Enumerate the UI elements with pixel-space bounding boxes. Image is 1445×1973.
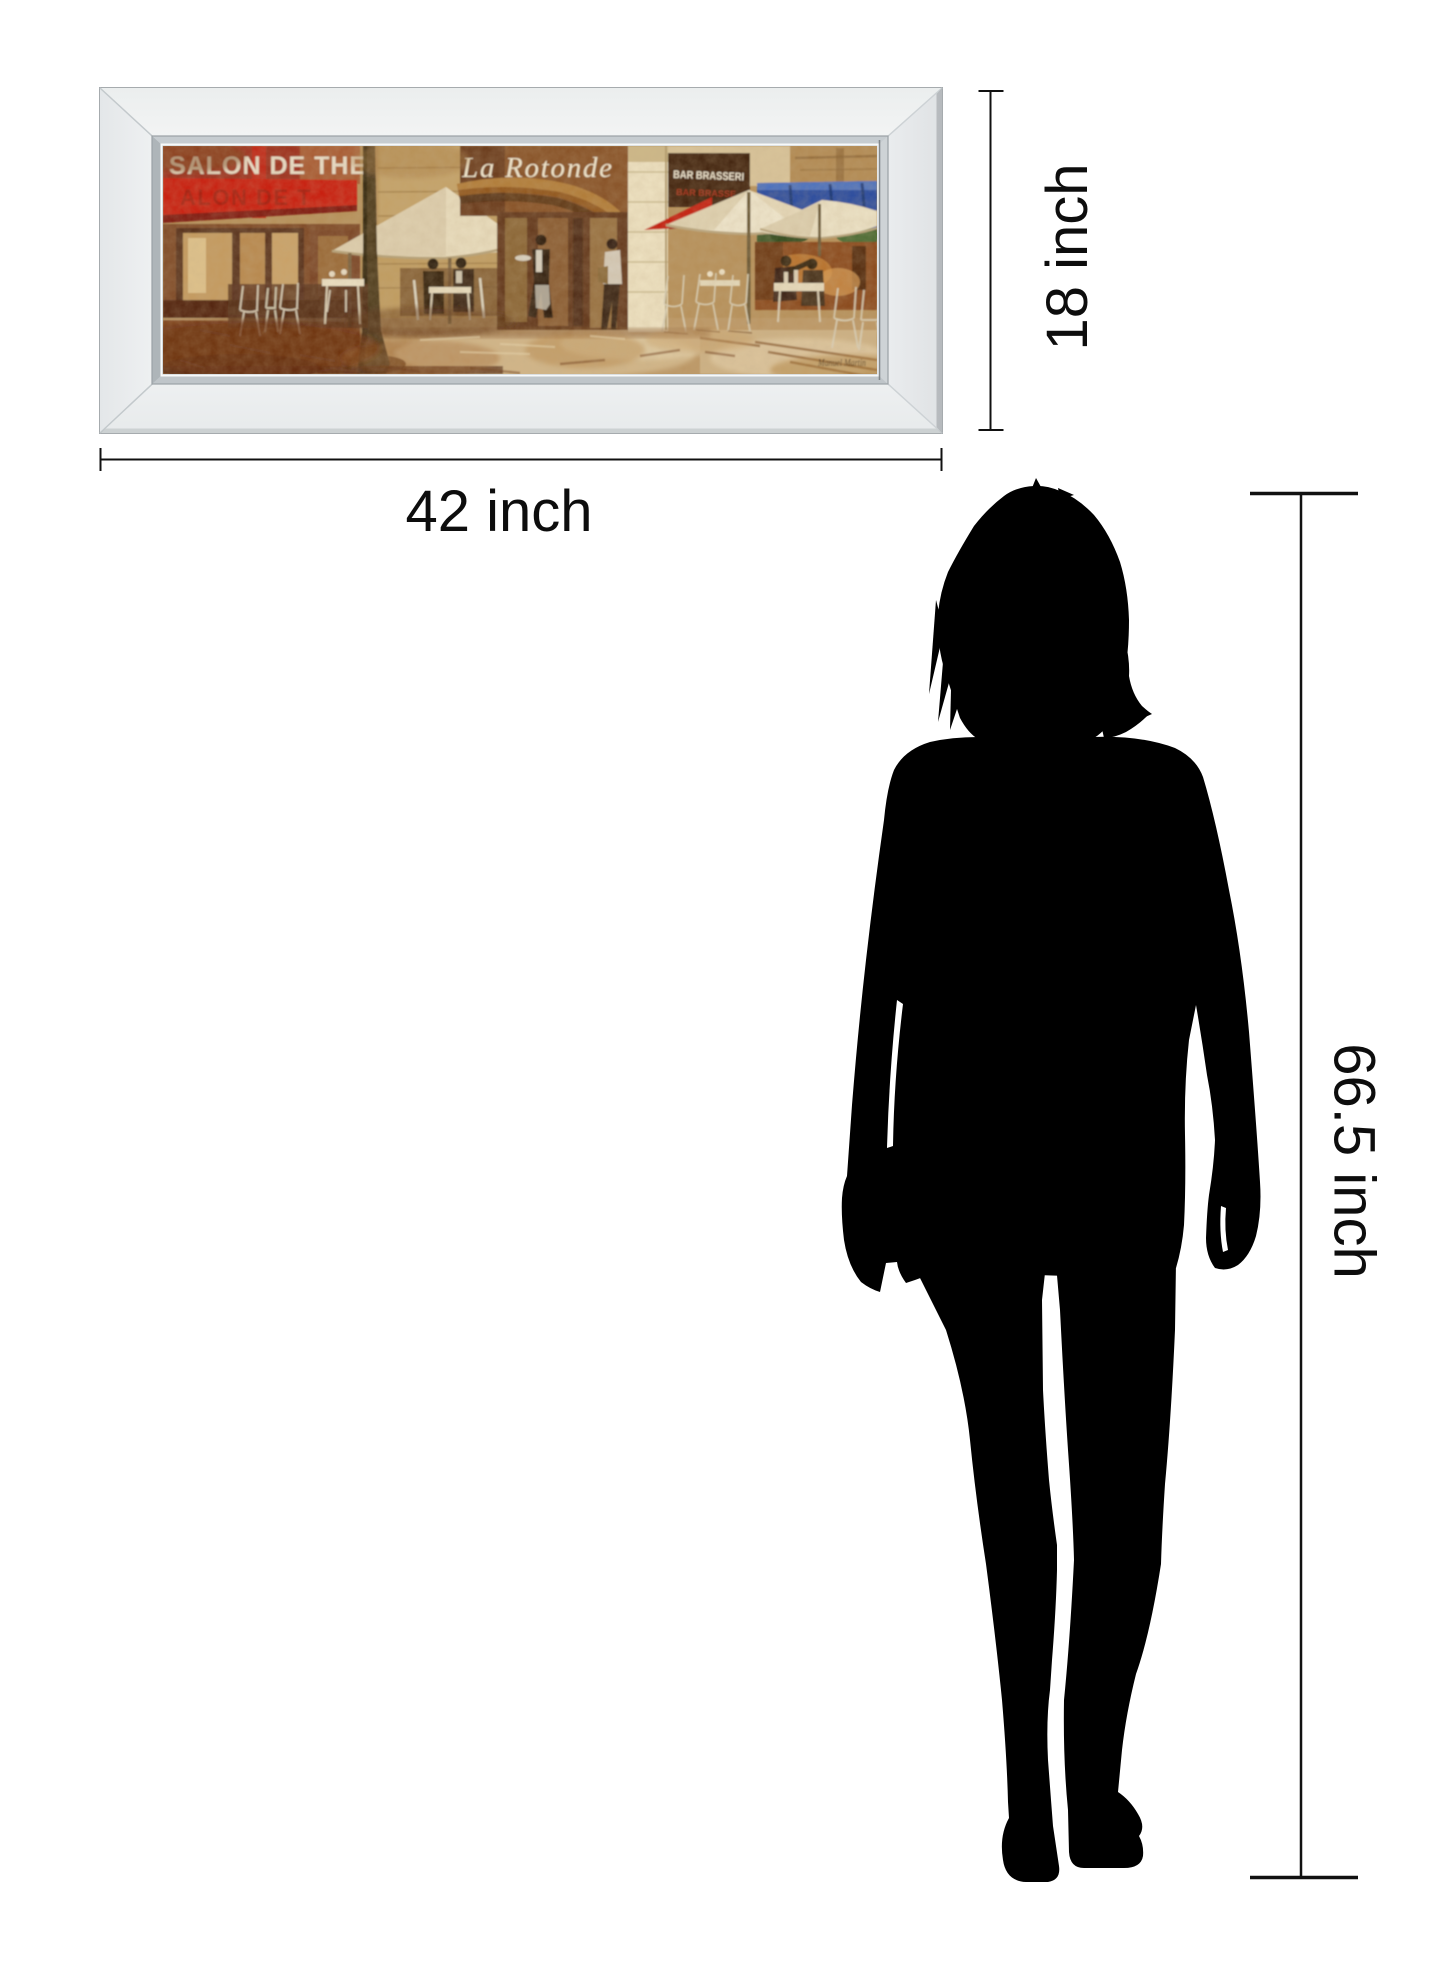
svg-text:18 inch: 18 inch xyxy=(1035,163,1100,350)
svg-text:42 inch: 42 inch xyxy=(405,479,592,544)
svg-text:66.5 inch: 66.5 inch xyxy=(1322,1043,1387,1278)
